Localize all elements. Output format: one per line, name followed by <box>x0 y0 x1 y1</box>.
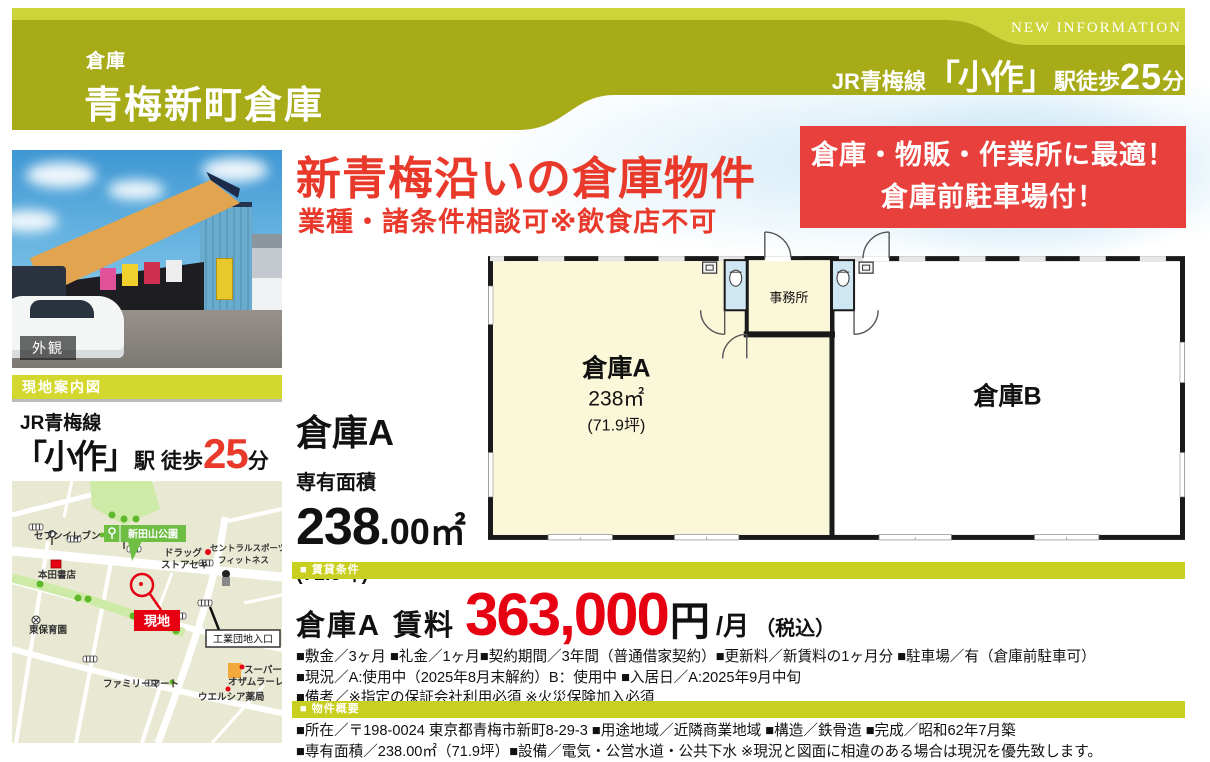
walk-label: 徒歩 <box>161 445 203 475</box>
unit-info: 倉庫A 専有面積 238.00㎡ (71.9坪) <box>296 404 466 586</box>
toilet-room-right <box>832 260 854 310</box>
station-name: 「小作」 <box>14 430 134 478</box>
car-windshield <box>30 300 94 318</box>
photo-caption: 外観 <box>20 336 76 360</box>
bookstore-icon <box>51 560 61 568</box>
plan-office-label: 事務所 <box>769 290 808 305</box>
area-map: 新田山公園 セブンイレブン ドラッグ ストアセキ セントラルスポーツ フィットネ… <box>12 481 282 743</box>
lease-band: ■ 賃貸条件 <box>292 562 1185 579</box>
unit-area: 238.00㎡ <box>296 497 466 557</box>
map-label-familymart: ファミリーマート <box>103 679 179 690</box>
property-title: 青梅新町倉庫 <box>84 74 324 129</box>
map-label-welcia: ウエルシア薬局 <box>198 691 265 703</box>
property-category: 倉庫 <box>86 46 126 73</box>
overview-line: ■専有面積／238.00㎡（71.9坪）■設備／電気・公営水道・公共下水 ※現況… <box>296 742 1102 762</box>
walk-minutes: 25 <box>203 430 248 478</box>
station-name: 「小作」 <box>926 50 1054 99</box>
crossing-icon <box>198 600 212 606</box>
crossing-icon <box>29 524 43 530</box>
cloud-shape <box>26 162 96 188</box>
map-label-nursery: 東保育園 <box>28 624 67 636</box>
map-label-drugstore: ストアセキ <box>161 560 208 571</box>
nursery-icon <box>32 616 40 624</box>
industrial-entrance-text: 工業団地入口 <box>213 633 273 646</box>
store-icon <box>226 687 231 692</box>
map-label-bookstore: 本田書店 <box>38 569 77 581</box>
station-suffix: 駅 <box>134 445 155 475</box>
park-label: 新田山公園 <box>104 525 186 542</box>
rent-per-month: /月 <box>716 606 749 643</box>
area-label: 専有面積 <box>296 466 466 495</box>
poster <box>100 268 116 290</box>
plan-room-a-label: 倉庫A <box>581 353 650 382</box>
lease-terms-line: ■敷金／3ヶ月 ■礼金／1ヶ月■契約期間／3年間（普通借家契約）■更新料／新賃料… <box>296 647 1096 668</box>
overview-line: ■所在／〒198-0024 東京都青梅市新町8-29-3 ■用途地域／近隣商業地… <box>296 721 1102 742</box>
rent-unit-name: 倉庫A <box>296 602 381 644</box>
header-station-access: JR青梅線 「小作」 駅徒歩 25 分 <box>832 50 1184 99</box>
poster <box>144 262 160 284</box>
rent-yen: 円 <box>670 589 710 647</box>
overview-band: ■ 物件概要 <box>292 701 1185 718</box>
area-integer: 238 <box>296 498 380 556</box>
map-label-drugstore: ドラッグ <box>164 547 203 559</box>
plan-room-a-tsubo: (71.9坪) <box>587 417 645 435</box>
white-truck <box>250 278 282 312</box>
crossing-icon <box>83 656 97 662</box>
catch-title: 新青梅沿いの倉庫物件 <box>296 142 756 207</box>
walk-label: 駅徒歩 <box>1054 64 1120 96</box>
map-label-supermarket: スーパー <box>244 664 282 676</box>
access-station-line: 「小作」 駅 徒歩 25 分 <box>14 430 269 478</box>
unit-name: 倉庫A <box>296 404 466 456</box>
flyer-page: 倉庫 青梅新町倉庫 NEW INFORMATION JR青梅線 「小作」 駅徒歩… <box>0 0 1210 762</box>
lease-terms-line: ■現況／A:使用中（2025年8月末解約）B：使用中 ■入居日／A:2025年9… <box>296 668 1096 689</box>
map-caption-band: 現地案内図 <box>12 375 282 399</box>
minutes-unit: 分 <box>1162 64 1184 96</box>
supermarket-icon <box>228 663 241 678</box>
map-label-seven-eleven: セブンイレブン <box>34 530 101 542</box>
exterior-photo: 外観 <box>12 150 282 368</box>
floor-plan: 倉庫A 238㎡ (71.9坪) 事務所 倉庫B <box>488 220 1185 567</box>
new-information-label: NEW INFORMATION <box>1011 20 1182 37</box>
minutes-unit: 分 <box>248 445 269 475</box>
rent-label: 賃料 <box>393 602 455 644</box>
highlight-line2: 倉庫前駐車場付！ <box>800 177 1186 219</box>
rail-line: JR青梅線 <box>832 64 926 96</box>
site-label: 現地 <box>144 614 170 629</box>
fitness-icon <box>222 577 230 586</box>
toilet-room-left <box>725 260 747 310</box>
lease-terms: ■敷金／3ヶ月 ■礼金／1ヶ月■契約期間／3年間（普通借家契約）■更新料／新賃料… <box>296 647 1096 709</box>
rent-amount: 363,000 <box>465 580 668 649</box>
poster <box>122 264 138 286</box>
plan-room-b-label: 倉庫B <box>972 382 1041 411</box>
poster <box>166 260 182 282</box>
property-overview: ■所在／〒198-0024 東京都青梅市新町8-29-3 ■用途地域／近隣商業地… <box>296 721 1102 762</box>
cloud-shape <box>12 210 58 232</box>
yellow-signboard <box>216 258 233 300</box>
park-name: 新田山公園 <box>128 528 178 541</box>
map-label-fitness: セントラルスポーツ <box>210 543 282 553</box>
rent-line: 倉庫A 賃料 363,000 円 /月 （税込） <box>296 580 835 649</box>
map-label-supermarket: オザムラーレ <box>228 677 282 688</box>
fitness-icon <box>222 570 230 578</box>
map-label-fitness: フィットネス <box>218 555 269 565</box>
cloud-shape <box>108 180 164 200</box>
rent-tax-note: （税込） <box>755 612 835 641</box>
plan-room-a-area: 238㎡ <box>588 386 644 411</box>
walk-minutes: 25 <box>1120 56 1162 98</box>
area-decimal-unit: .00㎡ <box>380 511 466 552</box>
